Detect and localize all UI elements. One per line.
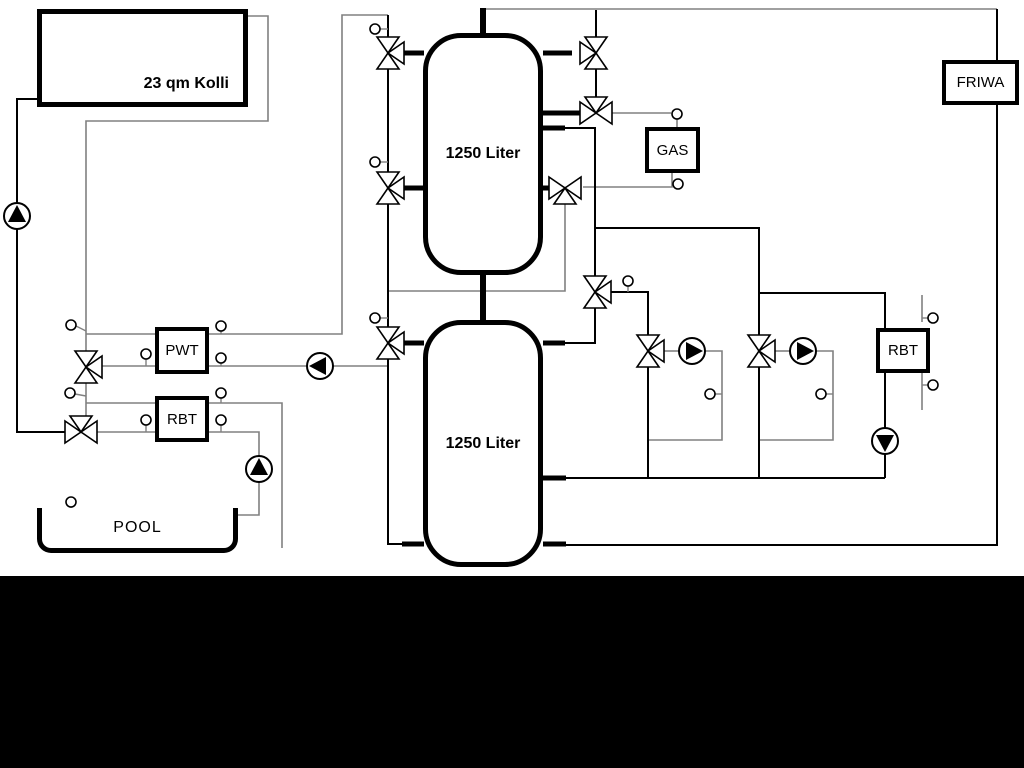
buffer-tank-top-label: 1250 Liter (446, 145, 521, 163)
solar-collector-box: 23 qm Kolli (37, 9, 248, 107)
rbt-left-label: RBT (167, 411, 197, 428)
pool-basin: POOL (37, 508, 238, 553)
gas-label: GAS (657, 142, 689, 159)
pwt-label: PWT (165, 342, 198, 359)
solar-collector-label: 23 qm Kolli (144, 75, 229, 93)
buffer-tank-bottom: 1250 Liter (423, 320, 543, 567)
rbt-left-box: RBT (155, 396, 209, 442)
rbt-right-label: RBT (888, 342, 918, 359)
pool-label: POOL (113, 519, 161, 537)
buffer-tank-top: 1250 Liter (423, 33, 543, 275)
buffer-tank-bottom-label: 1250 Liter (446, 435, 521, 453)
gas-boiler-box: GAS (645, 127, 700, 173)
friwa-station-box: FRIWA (942, 60, 1019, 105)
rbt-right-box: RBT (876, 328, 930, 373)
letterbox-bottom (0, 576, 1024, 768)
hydraulic-schematic: 23 qm Kolli 1250 Liter 1250 Liter PWT RB… (0, 0, 1024, 768)
pwt-heat-exchanger-box: PWT (155, 327, 209, 374)
friwa-label: FRIWA (957, 74, 1005, 91)
